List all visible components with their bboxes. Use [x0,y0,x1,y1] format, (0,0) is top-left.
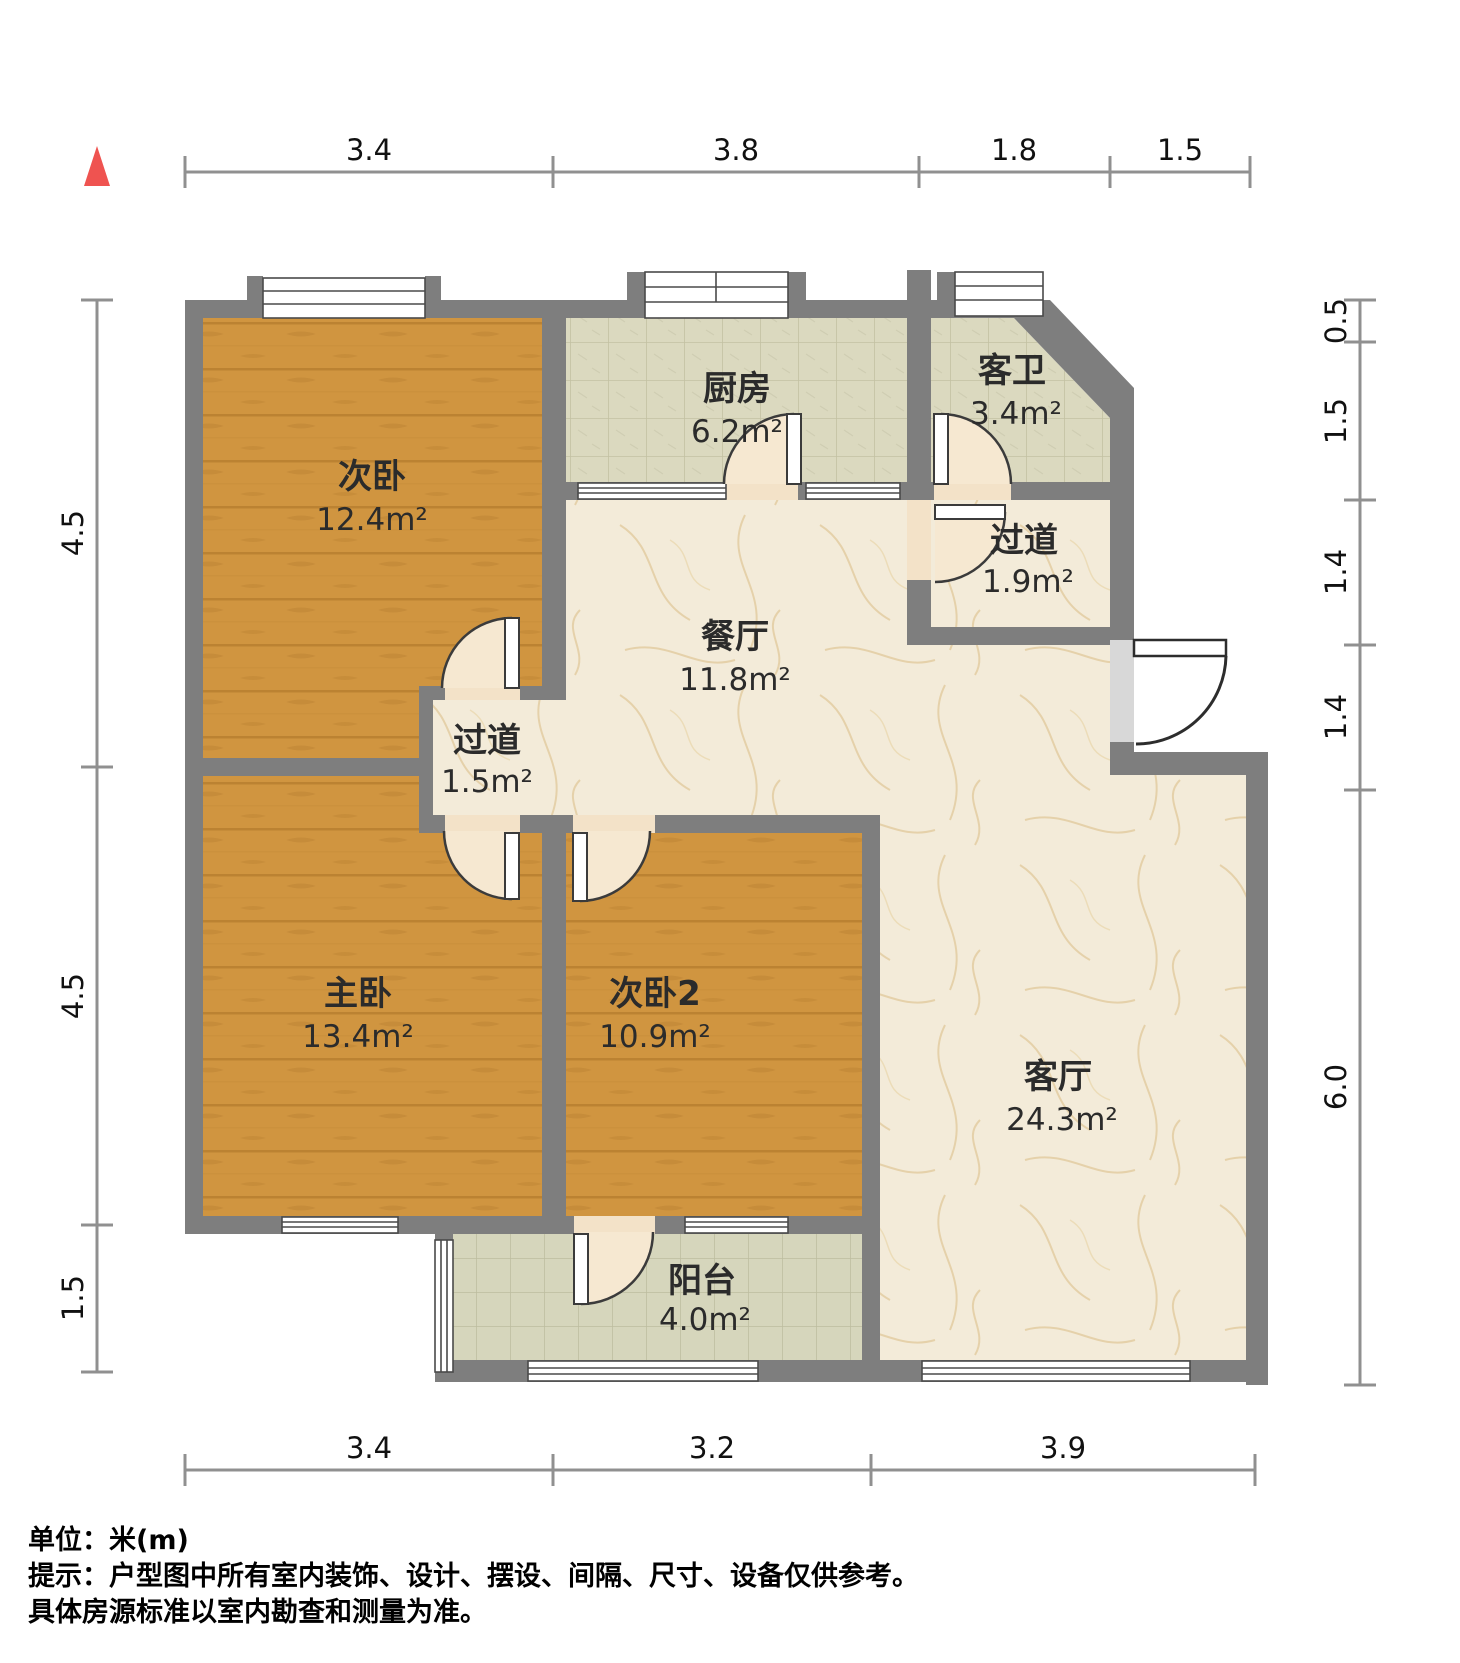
window-kitchen-bottom-right-icon [806,483,900,499]
dim-left-2: 1.5 [56,1275,90,1321]
room-label-dining-name: 餐厅 [701,617,769,657]
window-guestbath-top-icon [955,272,1043,316]
footer-disclaimer-line2: 具体房源标准以室内勘查和测量为准。 [28,1596,487,1628]
room-label-balcony-area: 4.0m² [659,1302,751,1338]
dim-right-4: 6.0 [1319,1064,1353,1110]
dim-bottom-1: 3.2 [689,1431,735,1465]
room-label-hallway-b-area: 1.5m² [441,764,533,800]
window-balcony-bottom-icon [528,1361,758,1381]
room-label-guestbath-name: 客卫 [978,351,1046,391]
room-label-kitchen-name: 厨房 [703,369,771,409]
window-master-bottom-icon [282,1217,398,1233]
window-living-bottom-icon [922,1361,1190,1381]
door-entry-icon [1134,640,1226,744]
room-label-kitchen-area: 6.2m² [691,414,783,450]
room-label-hallway-a-area: 1.9m² [982,564,1074,600]
footer-notes: 单位：米(m) 提示：户型图中所有室内装饰、设计、摆设、间隔、尺寸、设备仅供参考… [28,1524,919,1628]
dim-top-1: 3.8 [713,133,759,167]
dim-bottom-0: 3.4 [346,1431,392,1465]
window-bedroom3-bottom-icon [685,1217,788,1233]
footer-disclaimer-line1: 提示：户型图中所有室内装饰、设计、摆设、间隔、尺寸、设备仅供参考。 [28,1560,919,1592]
room-label-living-area: 24.3m² [1006,1102,1118,1138]
dim-left-1: 4.5 [56,973,90,1019]
dim-top-3: 1.5 [1157,133,1203,167]
window-balcony-left-icon [435,1240,453,1372]
dim-right-0: 0.5 [1319,298,1353,344]
room-floor-dining-lower [433,698,1110,815]
room-label-living-name: 客厅 [1024,1057,1092,1097]
north-arrow-icon [84,146,110,186]
room-label-master-name: 主卧 [324,974,392,1014]
room-label-bedroom3-name: 次卧2 [609,974,701,1014]
window-bedroom2-top-icon [263,278,425,318]
dim-top-0: 3.4 [346,133,392,167]
room-label-guestbath-area: 3.4m² [970,396,1062,432]
window-kitchen-top-icon [645,272,788,318]
dim-right-2: 1.4 [1319,549,1353,595]
room-label-master-area: 13.4m² [302,1019,414,1055]
room-label-dining-area: 11.8m² [679,662,791,698]
room-label-hallway-b-name: 过道 [453,721,521,761]
room-label-balcony-name: 阳台 [668,1261,736,1301]
dim-left-0: 4.5 [56,510,90,556]
room-label-bedroom3-area: 10.9m² [599,1019,711,1055]
floorplan-page: 次卧 12.4m² 厨房 6.2m² 客卫 3.4m² 过道 1.9m² 餐厅 … [0,0,1460,1663]
room-label-hallway-a-name: 过道 [990,521,1058,561]
footer-unit-label: 单位：米(m) [28,1524,189,1556]
room-floor-balcony [453,1234,862,1360]
floorplan-canvas: 次卧 12.4m² 厨房 6.2m² 客卫 3.4m² 过道 1.9m² 餐厅 … [0,0,1460,1663]
dim-right-3: 1.4 [1319,694,1353,740]
room-label-bedroom2-area: 12.4m² [316,502,428,538]
dim-right-1: 1.5 [1319,398,1353,444]
dim-top-2: 1.8 [991,133,1037,167]
window-kitchen-bottom-left-icon [578,483,726,499]
room-floor-entry [1110,775,1246,815]
room-label-bedroom2-name: 次卧 [338,457,406,497]
dim-bottom-2: 3.9 [1040,1431,1086,1465]
